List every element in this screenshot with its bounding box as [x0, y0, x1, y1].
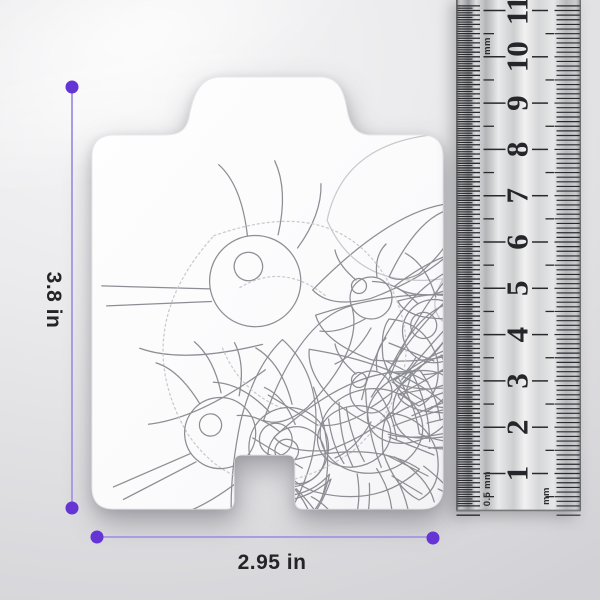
ruler-number: 9 [500, 95, 535, 111]
width-dimension-label: 2.95 in [238, 551, 307, 575]
ruler: 1110987654321 mm mm 0.5 mm [456, 0, 581, 515]
height-dimension-label: 3.8 in [41, 272, 65, 329]
height-dimension-line [71, 93, 73, 503]
height-dimension-top-dot [66, 81, 79, 94]
width-dimension-right-dot [427, 532, 440, 545]
ruler-half-mm-label: 0.5 [482, 491, 493, 506]
glue-trap-card [92, 77, 443, 509]
width-dimension-line [102, 536, 428, 538]
width-dimension-left-dot [91, 531, 104, 544]
ruler-number: 1 [500, 466, 535, 482]
product-photo: { "annotations": { "height_label": "3.8 … [0, 0, 600, 600]
ruler-number: 7 [500, 188, 535, 204]
ruler-number: 11 [500, 0, 535, 25]
ruler-mm-label-bottom-left: mm [482, 471, 493, 489]
ruler-number: 6 [500, 234, 535, 250]
ruler-number: 2 [500, 419, 535, 435]
ruler-number: 4 [500, 327, 535, 343]
ruler-mm-label-bottom-right: mm [541, 487, 552, 505]
height-dimension-bottom-dot [66, 502, 79, 515]
ruler-number: 8 [500, 142, 535, 158]
ruler-number: 5 [500, 281, 535, 297]
product-scene: 1110987654321 mm mm 0.5 mm [0, 0, 600, 600]
ruler-mm-label-top: mm [482, 37, 493, 55]
ruler-number: 10 [500, 41, 535, 72]
ruler-number: 3 [500, 373, 535, 389]
